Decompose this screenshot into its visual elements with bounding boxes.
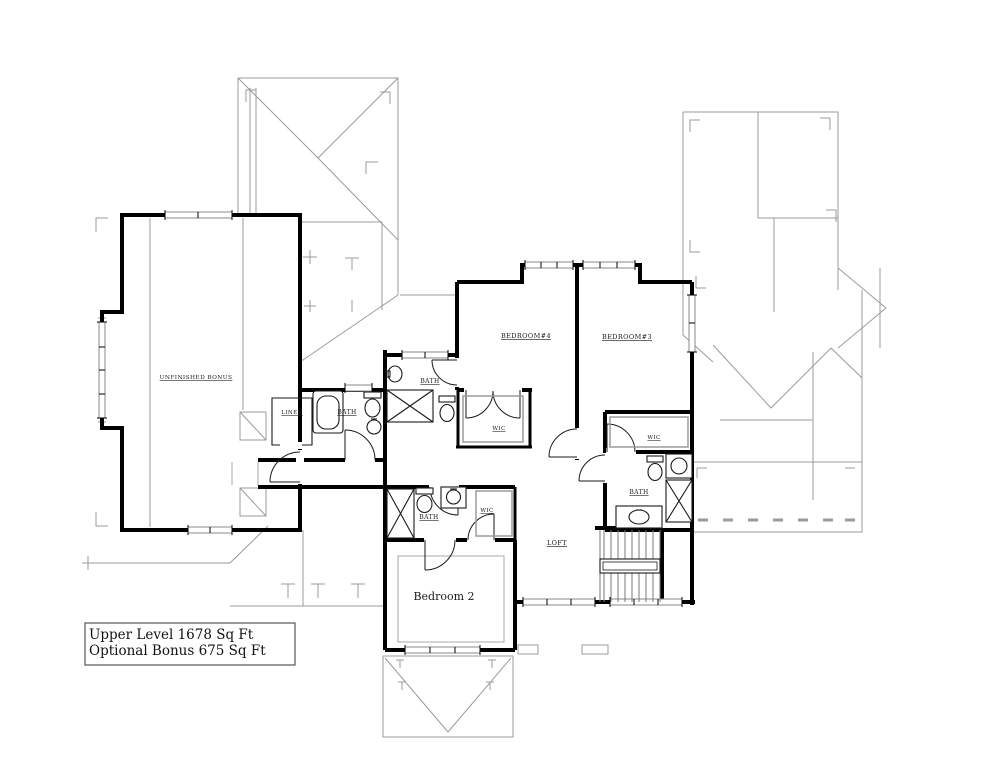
- sink: [367, 419, 381, 434]
- bedroom-top-walls: [457, 265, 692, 282]
- staircase: [600, 530, 660, 602]
- floor-plan-canvas: UNFINISHED BONUS BEDROOM#4 BEDROOM#3 BAT…: [0, 0, 1000, 772]
- shower: [666, 480, 692, 522]
- label-bath-right: BATH: [629, 489, 648, 496]
- label-bedroom3: BEDROOM#3: [602, 333, 652, 341]
- label-linen: LINEN: [281, 410, 302, 416]
- title-box: Upper Level 1678 Sq Ft Optional Bonus 67…: [85, 623, 295, 665]
- label-wic-bedroom4: WIC: [492, 426, 505, 432]
- label-unfinished-bonus: UNFINISHED BONUS: [160, 375, 233, 381]
- stair-handrail: [600, 559, 660, 573]
- sink: [441, 487, 466, 508]
- toilet: [439, 396, 455, 422]
- toilet: [416, 488, 433, 513]
- toilet: [647, 456, 663, 481]
- title-line2: Optional Bonus 675 Sq Ft: [89, 643, 266, 659]
- label-bath-center: BATH: [337, 409, 356, 416]
- label-wic-right: WIC: [647, 435, 660, 441]
- label-bath-bedroom4: BATH: [420, 378, 439, 385]
- vanity-sink: [616, 506, 662, 528]
- label-loft: LOFT: [547, 539, 567, 547]
- bonus-room-walls: [102, 215, 300, 530]
- shower: [387, 489, 414, 538]
- label-bath-hall: BATH: [419, 514, 438, 521]
- toilet: [364, 392, 381, 417]
- label-bedroom4: BEDROOM#4: [501, 332, 551, 340]
- room-labels: UNFINISHED BONUS BEDROOM#4 BEDROOM#3 BAT…: [160, 332, 661, 603]
- title-line1: Upper Level 1678 Sq Ft: [89, 627, 254, 643]
- floor-plan-page: UNFINISHED BONUS BEDROOM#4 BEDROOM#3 BAT…: [0, 0, 1000, 772]
- sink: [666, 454, 692, 478]
- sink: [386, 366, 402, 382]
- label-bedroom2: Bedroom 2: [413, 590, 474, 603]
- label-wic-hall: WIC: [480, 508, 493, 514]
- shower: [387, 390, 433, 422]
